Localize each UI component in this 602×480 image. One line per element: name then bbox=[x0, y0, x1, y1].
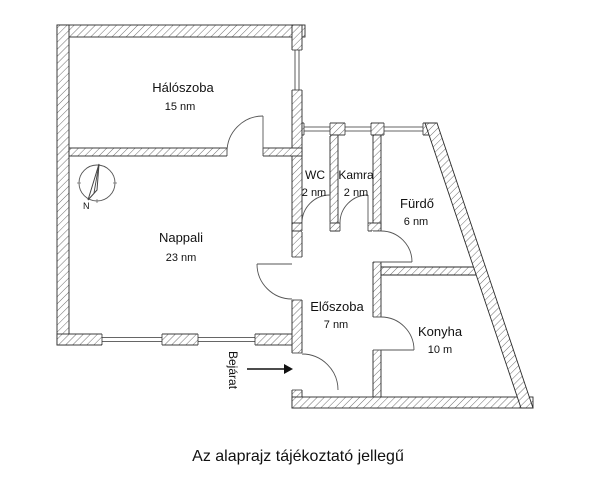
room-name: Nappali bbox=[159, 230, 203, 245]
caption: Az alaprajz tájékoztató jellegű bbox=[192, 448, 404, 465]
opening-window-kamra bbox=[345, 122, 371, 136]
room-area: 23 nm bbox=[166, 252, 197, 264]
room-furdo: Fürdő 6 nm bbox=[400, 196, 434, 228]
opening-window-nappali-2 bbox=[198, 333, 255, 346]
opening-door-haloszoba bbox=[227, 147, 263, 157]
doors bbox=[227, 116, 414, 390]
room-area: 6 nm bbox=[404, 216, 428, 228]
wall-bottom-right bbox=[292, 397, 533, 408]
opening-door-konyha bbox=[372, 317, 382, 350]
room-name: Fürdő bbox=[400, 196, 434, 211]
opening-window-furdo bbox=[384, 122, 423, 136]
wall-divider-wc-kamra bbox=[330, 135, 338, 231]
wall-right-eloszoba bbox=[373, 135, 381, 408]
floorplan-drawing: N Bejárat Hálószoba 15 nm Nappali 23 nm … bbox=[0, 0, 602, 480]
wall-divider-furdo-konyha bbox=[381, 267, 478, 275]
door-wc bbox=[302, 195, 330, 223]
compass: N bbox=[77, 164, 117, 211]
entrance-annotation: Bejárat bbox=[226, 351, 293, 390]
room-name: Hálószoba bbox=[152, 80, 214, 95]
opening-window-haloszoba-right bbox=[291, 50, 303, 90]
room-area: 2 nm bbox=[302, 187, 326, 199]
wall-left bbox=[57, 25, 69, 345]
opening-door-furdo bbox=[372, 231, 382, 262]
room-area: 2 nm bbox=[344, 187, 368, 199]
room-nappali: Nappali 23 nm bbox=[159, 230, 203, 264]
door-furdo bbox=[381, 231, 412, 262]
opening-window-nappali-1 bbox=[102, 333, 162, 346]
wall-divider-haloszoba-nappali bbox=[69, 148, 302, 156]
room-name: WC bbox=[305, 168, 325, 182]
opening-entrance bbox=[291, 353, 303, 390]
room-wc: WC 2 nm bbox=[302, 168, 326, 199]
room-name: Kamra bbox=[338, 168, 374, 182]
door-haloszoba bbox=[227, 116, 263, 152]
compass-needle-icon bbox=[88, 164, 99, 200]
wall-top bbox=[57, 25, 305, 37]
door-kamra bbox=[340, 195, 368, 223]
room-area: 10 m bbox=[428, 344, 452, 356]
compass-north-label: N bbox=[83, 201, 90, 211]
opening-window-wc bbox=[304, 122, 330, 136]
opening-door-kamra bbox=[340, 222, 368, 232]
opening-door-wc bbox=[302, 222, 330, 232]
room-name: Konyha bbox=[418, 324, 463, 339]
room-konyha: Konyha 10 m bbox=[418, 324, 463, 356]
room-name: Előszoba bbox=[310, 299, 364, 314]
wall-bottom-left-building bbox=[57, 334, 298, 345]
room-haloszoba: Hálószoba 15 nm bbox=[152, 80, 214, 113]
room-kamra: Kamra 2 nm bbox=[338, 168, 374, 199]
room-area: 15 nm bbox=[165, 101, 196, 113]
floorplan-canvas: N Bejárat Hálószoba 15 nm Nappali 23 nm … bbox=[0, 0, 602, 480]
wall-slanted bbox=[425, 123, 533, 408]
room-labels: Hálószoba 15 nm Nappali 23 nm WC 2 nm Ka… bbox=[152, 80, 463, 356]
room-area: 7 nm bbox=[324, 319, 348, 331]
opening-door-nappali bbox=[291, 257, 303, 300]
door-nappali bbox=[257, 264, 292, 299]
entrance-label: Bejárat bbox=[226, 351, 240, 390]
door-entrance bbox=[302, 354, 338, 390]
room-eloszoba: Előszoba 7 nm bbox=[310, 299, 364, 331]
door-konyha bbox=[381, 317, 414, 350]
